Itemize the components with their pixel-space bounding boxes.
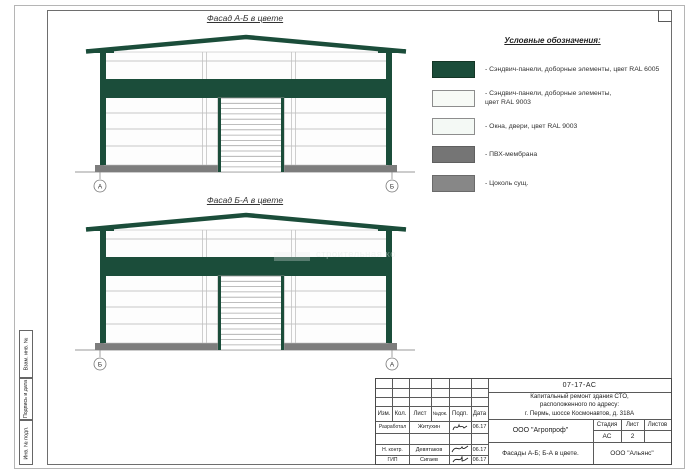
legend-item: - ПВХ-мембрана bbox=[432, 146, 670, 163]
axis-marker-left: Б bbox=[94, 350, 106, 370]
signature bbox=[449, 454, 471, 464]
legend-label: - Окна, двери, цвет RAL 9003 bbox=[485, 122, 577, 131]
tb-name: Житухин bbox=[409, 421, 449, 433]
tb-role: ГИП bbox=[376, 455, 409, 464]
legend-item: - Сэндвич-панели, доборные элементы, цве… bbox=[432, 89, 670, 107]
legend: Условные обозначения: - Сэндвич-панели, … bbox=[430, 36, 675, 201]
tb-sheets-value bbox=[644, 430, 671, 442]
legend-swatch-ral6005 bbox=[432, 61, 475, 78]
axis-marker-left: А bbox=[94, 172, 106, 192]
legend-label: - Сэндвич-панели, доборные элементы, цве… bbox=[485, 89, 611, 107]
title-block: Изм. Кол. Лист №док. Подп. Дата Разработ… bbox=[375, 378, 672, 465]
tb-project: Капитальный ремонт здания СТО, расположе… bbox=[488, 392, 671, 419]
legend-label: - Сэндвич-панели, доборные элементы, цве… bbox=[485, 65, 659, 74]
tb-sheet-value: 2 bbox=[621, 430, 644, 442]
tb-header-list: Лист bbox=[409, 406, 431, 421]
legend-item: - Окна, двери, цвет RAL 9003 bbox=[432, 118, 670, 135]
margin-label-inv: Инв. № подл. bbox=[23, 426, 29, 459]
axis-label-left: А bbox=[98, 183, 103, 190]
axis-label-right: А bbox=[390, 361, 395, 368]
roof bbox=[86, 215, 406, 230]
tb-stage-value: АС bbox=[593, 430, 621, 442]
margin-box-vzam: Взам. инв. № bbox=[19, 330, 33, 378]
tb-role: Разработал bbox=[376, 421, 409, 433]
legend-label: - ПВХ-мембрана bbox=[485, 150, 537, 159]
tb-contractor: ООО "Альянс" bbox=[593, 442, 671, 464]
watermark-text: строительная ко bbox=[316, 249, 396, 260]
top-right-stamp-divider bbox=[658, 10, 659, 21]
right-column bbox=[386, 50, 392, 165]
facade1-drawing: А Б bbox=[70, 30, 420, 198]
watermark-logo bbox=[274, 252, 310, 261]
right-column bbox=[386, 228, 392, 343]
tb-doc-number: 07-17-АС bbox=[488, 379, 671, 392]
tb-header-podp: Подп. bbox=[449, 406, 471, 421]
green-band bbox=[104, 79, 388, 98]
legend-title: Условные обозначения: bbox=[475, 36, 630, 45]
left-column bbox=[100, 50, 106, 165]
axis-label-right: Б bbox=[390, 183, 394, 190]
signature bbox=[449, 421, 471, 433]
tb-date: 06.17 bbox=[471, 455, 488, 464]
tb-header-kol: Кол. bbox=[392, 406, 409, 421]
roof bbox=[86, 37, 406, 52]
tb-name: Девятаков bbox=[409, 444, 449, 455]
legend-swatch-plinth bbox=[432, 175, 475, 192]
tb-date: 06.17 bbox=[471, 444, 488, 455]
facade1-title: Фасад А-Б в цвете bbox=[155, 13, 335, 23]
tb-header-data: Дата bbox=[471, 406, 488, 421]
tb-header-izm: Изм. bbox=[376, 406, 392, 421]
tb-sheet-header: Лист bbox=[621, 419, 644, 430]
legend-item: - Цоколь сущ. bbox=[432, 175, 670, 192]
legend-swatch-pvc-membrane bbox=[432, 146, 475, 163]
axis-marker-right: Б bbox=[386, 172, 398, 192]
tb-header-ndok: №док. bbox=[431, 406, 449, 421]
tb-company: ООО "Агропроф" bbox=[488, 419, 593, 442]
tb-sheets-header: Листов bbox=[644, 419, 671, 430]
margin-label-vzam: Взам. инв. № bbox=[23, 338, 29, 371]
tb-name: Сигаев bbox=[409, 455, 449, 464]
drawing-sheet: Взам. инв. № Подпись и дата Инв. № подл.… bbox=[0, 0, 700, 474]
facade2-title: Фасад Б-А в цвете bbox=[155, 195, 335, 205]
left-column bbox=[100, 228, 106, 343]
sectional-door bbox=[218, 98, 284, 172]
tb-stage-header: Стадия bbox=[593, 419, 621, 430]
top-right-stamp-bottom bbox=[658, 21, 672, 22]
legend-item: - Сэндвич-панели, доборные элементы, цве… bbox=[432, 61, 670, 78]
facade2-drawing: Б А bbox=[70, 208, 420, 376]
tb-role: Н. контр. bbox=[376, 444, 409, 455]
axis-label-left: Б bbox=[98, 361, 102, 368]
legend-swatch-windows-doors bbox=[432, 118, 475, 135]
tb-date: 06.17 bbox=[471, 421, 488, 433]
margin-label-podpis: Подпись и дата bbox=[23, 380, 29, 418]
legend-swatch-ral9003-panels bbox=[432, 90, 475, 107]
margin-box-inv: Инв. № подл. bbox=[19, 420, 33, 465]
legend-label: - Цоколь сущ. bbox=[485, 179, 528, 188]
sectional-door bbox=[218, 276, 284, 350]
margin-box-podpis: Подпись и дата bbox=[19, 378, 33, 420]
tb-drawing-title: Фасады А-Б; Б-А в цвете. bbox=[488, 442, 593, 464]
axis-marker-right: А bbox=[386, 350, 398, 370]
